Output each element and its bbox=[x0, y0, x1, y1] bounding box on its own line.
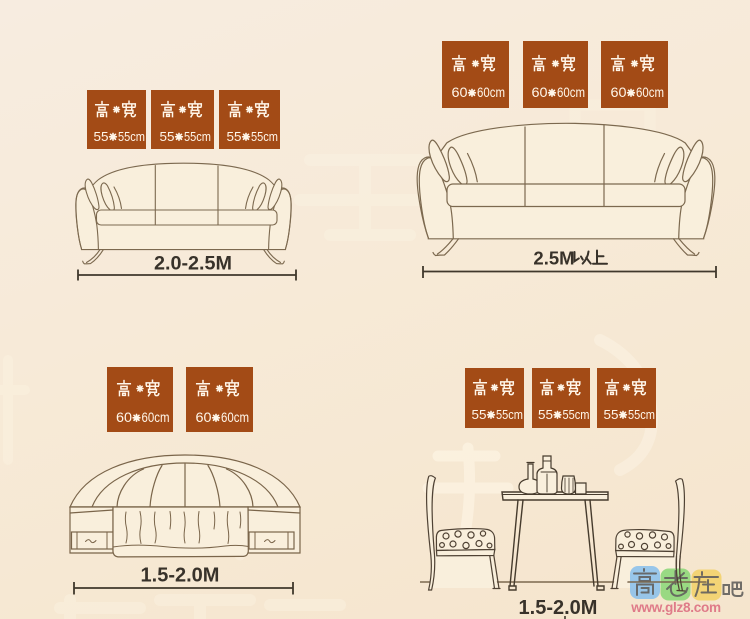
svg-text:1.5-2.0M: 1.5-2.0M bbox=[519, 597, 598, 619]
svg-text:55cm: 55cm bbox=[118, 129, 145, 144]
svg-text:60: 60 bbox=[611, 85, 627, 100]
svg-text:60: 60 bbox=[532, 85, 548, 100]
svg-text:55cm: 55cm bbox=[251, 129, 278, 144]
svg-text:60cm: 60cm bbox=[142, 410, 170, 425]
svg-text:55: 55 bbox=[604, 407, 619, 422]
svg-text:55: 55 bbox=[227, 129, 242, 144]
svg-text:55cm: 55cm bbox=[563, 407, 590, 422]
svg-text:55: 55 bbox=[160, 129, 175, 144]
svg-text:2.0-2.5M: 2.0-2.5M bbox=[154, 253, 232, 275]
svg-text:55cm: 55cm bbox=[496, 407, 523, 422]
svg-text:1.5-2.0M: 1.5-2.0M bbox=[141, 565, 220, 587]
svg-text:www.glz8.com: www.glz8.com bbox=[630, 600, 721, 615]
svg-text:55cm: 55cm bbox=[628, 407, 655, 422]
svg-text:60cm: 60cm bbox=[636, 85, 664, 100]
svg-text:60cm: 60cm bbox=[221, 410, 249, 425]
svg-text:60cm: 60cm bbox=[557, 85, 585, 100]
svg-text:55: 55 bbox=[538, 407, 553, 422]
svg-text:60: 60 bbox=[116, 410, 132, 425]
svg-text:55cm: 55cm bbox=[184, 129, 211, 144]
svg-text:60cm: 60cm bbox=[477, 85, 505, 100]
svg-text:55: 55 bbox=[94, 129, 109, 144]
svg-text:60: 60 bbox=[452, 85, 468, 100]
svg-text:2.5M: 2.5M bbox=[533, 248, 574, 269]
svg-text:60: 60 bbox=[196, 410, 212, 425]
svg-text:55: 55 bbox=[472, 407, 487, 422]
